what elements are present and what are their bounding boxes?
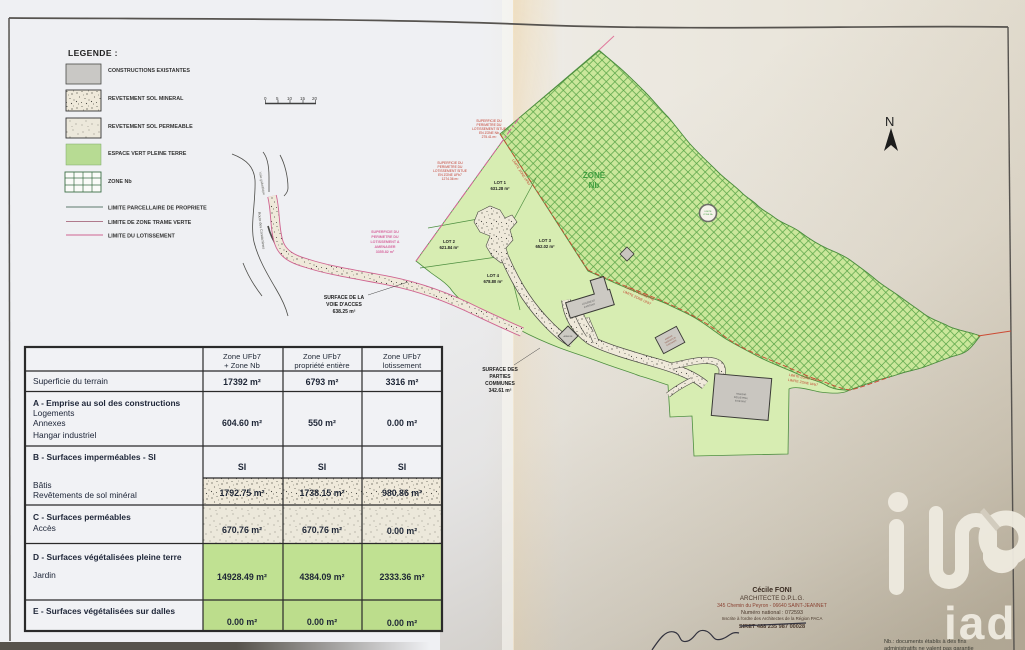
svg-text:20: 20 [312,96,318,101]
svg-text:980.86 m²: 980.86 m² [382,488,422,498]
svg-text:SURFACE DES: SURFACE DES [482,367,518,373]
svg-text:Zone UFb7: Zone UFb7 [223,352,261,361]
svg-text:604.60 m²: 604.60 m² [222,418,262,428]
svg-text:LIMITE DE ZONE TRAME VERTE: LIMITE DE ZONE TRAME VERTE [108,220,192,226]
svg-text:17392 m²: 17392 m² [223,377,261,387]
svg-text:CONSTRUCTIONS EXISTANTES: CONSTRUCTIONS EXISTANTES [108,68,190,74]
svg-text:342.61 m²: 342.61 m² [489,388,512,394]
svg-text:SI: SI [398,462,406,472]
svg-text:REVETEMENT SOL MINERAL: REVETEMENT SOL MINERAL [108,96,184,102]
svg-text:6793 m²: 6793 m² [306,377,339,387]
svg-text:0.00 m²: 0.00 m² [387,618,417,628]
svg-text:LOT 2: LOT 2 [443,239,456,244]
svg-text:670.76 m²: 670.76 m² [222,525,262,535]
svg-text:Logements: Logements [33,408,74,418]
svg-text:LIMITE PARCELLAIRE DE PROPRIET: LIMITE PARCELLAIRE DE PROPRIETE [108,206,207,212]
svg-text:631.28 m²: 631.28 m² [490,186,510,191]
svg-text:Superficie du terrain: Superficie du terrain [33,376,108,386]
svg-text:638.25 m²: 638.25 m² [333,309,356,315]
svg-text:LOT 4: LOT 4 [487,273,500,278]
svg-text:Cécile FONI: Cécile FONI [752,587,791,594]
svg-text:SUPERFICIE DU: SUPERFICIE DU [371,230,399,234]
svg-text:Annexes: Annexes [33,418,66,428]
svg-text:Nb: Nb [589,181,600,190]
svg-text:A - Emprise au sol des constru: A - Emprise au sol des constructions [33,398,181,408]
svg-text:iad: iad [944,597,1016,649]
svg-text:2333.36 m²: 2333.36 m² [380,572,425,582]
svg-text:SURFACE DE LA: SURFACE DE LA [324,295,365,301]
svg-text:Accès: Accès [33,523,56,533]
svg-text:Revêtements de sol minéral: Revêtements de sol minéral [33,490,137,500]
svg-text:678.80 m²: 678.80 m² [483,279,503,284]
svg-text:1792.75 m²: 1792.75 m² [220,488,265,498]
svg-text:345 Chemin du Peyron - 06640 S: 345 Chemin du Peyron - 06640 SAINT-JEANN… [717,603,827,609]
svg-text:275.41 m²: 275.41 m² [482,135,498,139]
svg-text:Bâtis: Bâtis [33,480,52,490]
svg-text:LOTISSEMENT A: LOTISSEMENT A [370,240,399,244]
svg-text:LEGENDE :: LEGENDE : [68,48,118,58]
svg-text:COMMUNES: COMMUNES [485,381,515,387]
svg-text:PERIMETRE DU: PERIMETRE DU [371,235,399,239]
svg-text:ZONE: ZONE [583,171,606,180]
svg-text:SI: SI [318,462,326,472]
svg-text:Inscrite à l'ordre des Archite: Inscrite à l'ordre des Architectes de la… [722,616,823,621]
svg-text:0.00 m²: 0.00 m² [307,617,337,627]
svg-text:LIMITE DU LOTISSEMENT: LIMITE DU LOTISSEMENT [108,234,175,240]
svg-text:1738.15 m²: 1738.15 m² [300,488,345,498]
svg-text:E - Surfaces végétalisées sur: E - Surfaces végétalisées sur dalles [33,606,175,616]
svg-text:ESPACE VERT PLEINE TERRE: ESPACE VERT PLEINE TERRE [108,151,187,157]
svg-text:Hangar industriel: Hangar industriel [33,430,96,440]
svg-text:4384.09 m²: 4384.09 m² [300,572,345,582]
svg-text:621.84 m²: 621.84 m² [439,245,459,250]
svg-text:D - Surfaces végétalisées plei: D - Surfaces végétalisées pleine terre [33,552,182,562]
svg-text:14928.49 m²: 14928.49 m² [217,572,267,582]
svg-text:0.00 m²: 0.00 m² [227,617,257,627]
svg-text:0.00 m²: 0.00 m² [387,418,417,428]
svg-text:652.02 m²: 652.02 m² [535,244,555,249]
svg-text:SI: SI [238,462,246,472]
svg-text:670.76 m²: 670.76 m² [302,525,342,535]
svg-text:Jardin: Jardin [33,570,56,580]
svg-text:B - Surfaces imperméables - SI: B - Surfaces imperméables - SI [33,452,156,462]
svg-text:Zone UFb7: Zone UFb7 [303,352,341,361]
svg-text:ZONE Nb: ZONE Nb [703,214,713,216]
svg-text:VOIE D'ACCES: VOIE D'ACCES [326,302,362,308]
svg-text:+ Zone Nb: + Zone Nb [224,361,260,370]
svg-text:550 m²: 550 m² [308,418,336,428]
svg-text:C - Surfaces perméables: C - Surfaces perméables [33,512,131,522]
svg-text:propriété entière: propriété entière [294,361,349,370]
svg-text:LIMITE: LIMITE [704,211,712,213]
svg-text:LOT 1: LOT 1 [494,180,507,185]
svg-text:PARTIES: PARTIES [489,374,511,380]
svg-text:REVETEMENT SOL PERMEABLE: REVETEMENT SOL PERMEABLE [108,124,193,130]
svg-text:0.00 m²: 0.00 m² [387,526,417,536]
svg-text:ARCHITECTE D.P.L.G.: ARCHITECTE D.P.L.G. [740,595,804,602]
svg-text:3316 m²: 3316 m² [386,377,419,387]
svg-text:AMENAGER: AMENAGER [375,245,396,249]
svg-text:ZONE Nb: ZONE Nb [108,179,132,185]
svg-text:ANNEXE: ANNEXE [564,335,574,338]
svg-text:N: N [885,114,894,129]
svg-text:3355.82 m²: 3355.82 m² [376,250,395,254]
svg-text:lotissement: lotissement [383,361,422,370]
svg-text:Zone UFb7: Zone UFb7 [383,352,421,361]
svg-text:LOT 3: LOT 3 [539,238,552,243]
svg-text:1274.36 m²: 1274.36 m² [442,177,460,181]
